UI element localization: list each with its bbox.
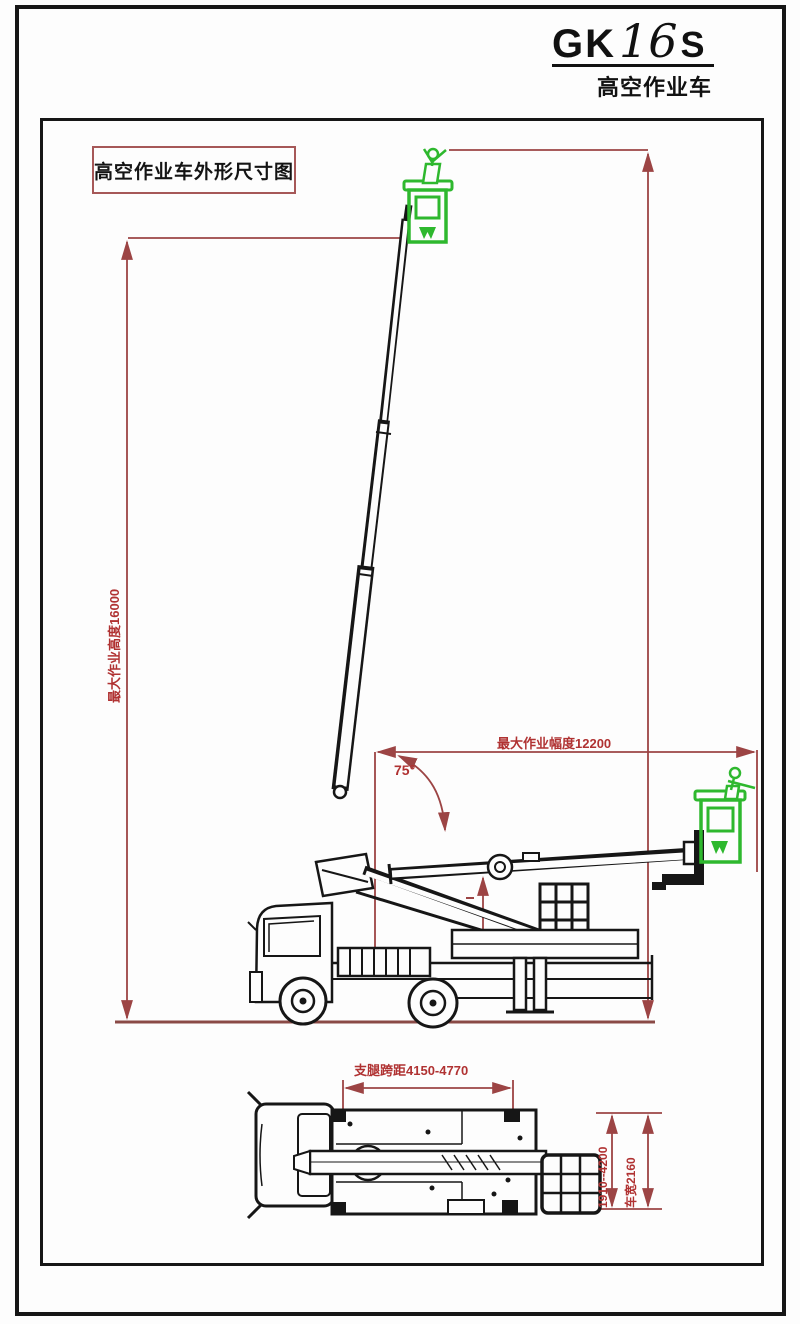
work-baskets (404, 149, 755, 862)
basket-logo (419, 227, 436, 239)
basket-top-view (542, 1155, 600, 1213)
right-worker-figure (725, 768, 755, 799)
boom-angle-label: 75° (394, 762, 415, 778)
outrigger-span-label: 支腿跨距4150-4770 (354, 1060, 468, 1079)
drawing-sheet: GK 16 S 高空作业车 高空作业车外形尺寸图 (0, 0, 800, 1324)
top-worker-figure (423, 149, 446, 183)
top-view-truck (248, 1092, 600, 1218)
right-basket (695, 791, 745, 862)
max-height-dim-label: 最大作业高度16000 (104, 589, 123, 703)
outrigger-legs (506, 958, 554, 1012)
chassis (332, 930, 652, 1000)
side-view-truck (248, 205, 704, 1027)
basket-logo (711, 841, 728, 854)
mirror-line (248, 1092, 262, 1106)
mirror-line (248, 1204, 262, 1218)
boom-top (294, 1151, 546, 1174)
lateral-span-label: 1910--4200 (596, 1147, 610, 1208)
max-radius-dim-label: 最大作业幅度12200 (497, 733, 611, 752)
vehicle-width-label: 车宽2160 (622, 1157, 639, 1208)
dimension-lines (127, 150, 757, 1209)
wheels (280, 978, 457, 1027)
main-boom (334, 205, 409, 798)
upper-boom (389, 842, 700, 884)
